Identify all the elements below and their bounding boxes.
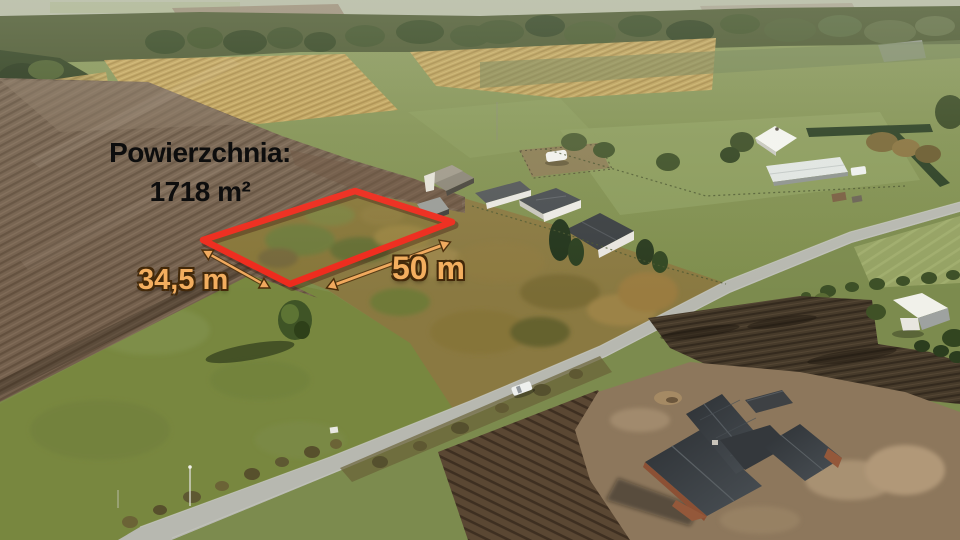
area-label: Powierzchnia: [70,139,330,167]
width-dimension-label: 34,5 m [138,266,228,295]
area-value: 1718 m² [70,178,330,206]
aerial-plot-listing-photo: Powierzchnia: 1718 m² 34,5 m 50 m [0,0,960,540]
length-dimension-label: 50 m [392,252,465,284]
